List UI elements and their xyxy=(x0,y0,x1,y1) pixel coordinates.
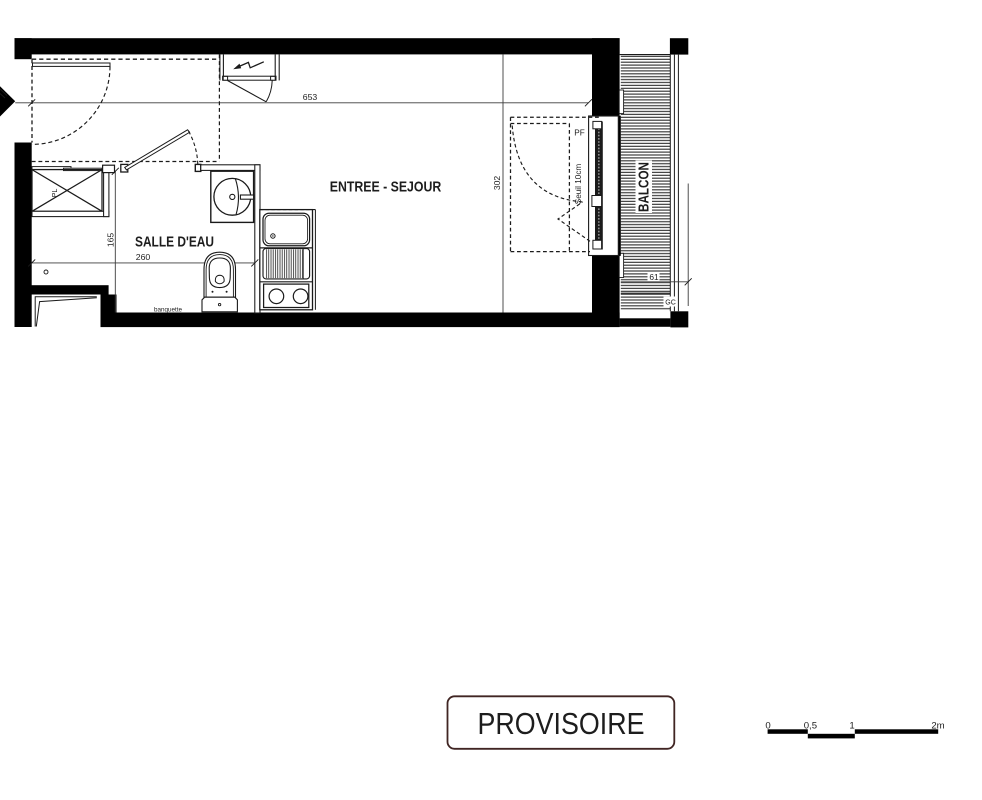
svg-text:BALCON: BALCON xyxy=(636,162,652,212)
svg-text:PF: PF xyxy=(574,129,584,138)
svg-text:ENTREE - SEJOUR: ENTREE - SEJOUR xyxy=(330,179,442,195)
svg-text:PROVISOIRE: PROVISOIRE xyxy=(478,706,645,741)
svg-text:1: 1 xyxy=(849,721,854,732)
svg-text:Seuil 10cm: Seuil 10cm xyxy=(574,164,583,205)
svg-text:SALLE D'EAU: SALLE D'EAU xyxy=(135,234,214,250)
svg-text:banquette: banquette xyxy=(154,306,182,313)
svg-text:302: 302 xyxy=(492,176,502,191)
svg-text:0,5: 0,5 xyxy=(804,721,817,732)
svg-text:260: 260 xyxy=(136,252,151,262)
svg-text:653: 653 xyxy=(303,92,318,102)
svg-text:PL: PL xyxy=(50,189,59,198)
svg-text:61: 61 xyxy=(649,272,659,282)
svg-text:165: 165 xyxy=(106,233,116,248)
svg-text:0: 0 xyxy=(765,721,770,732)
svg-text:2m: 2m xyxy=(931,721,944,732)
svg-text:GC: GC xyxy=(665,298,676,307)
